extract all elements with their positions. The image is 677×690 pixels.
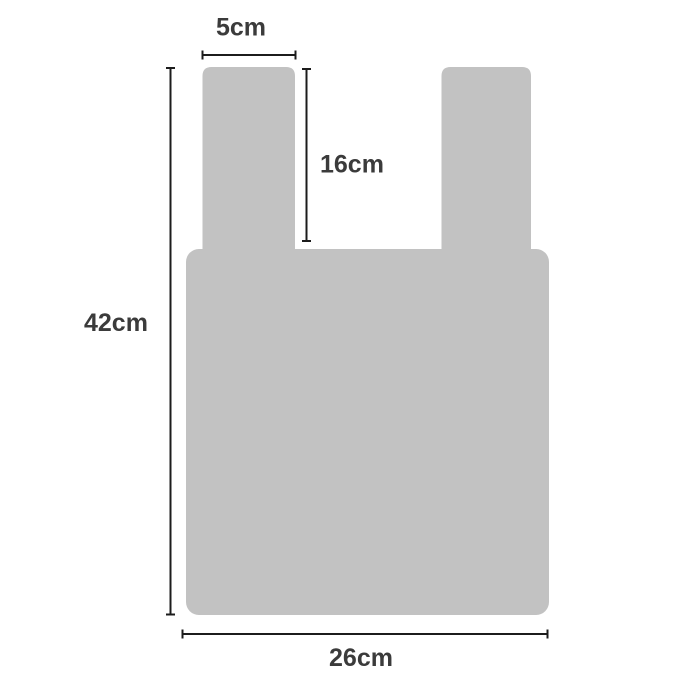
svg-text:16cm: 16cm [320,151,384,179]
svg-text:5cm: 5cm [216,14,266,42]
svg-text:26cm: 26cm [329,644,393,672]
svg-text:42cm: 42cm [84,309,148,337]
